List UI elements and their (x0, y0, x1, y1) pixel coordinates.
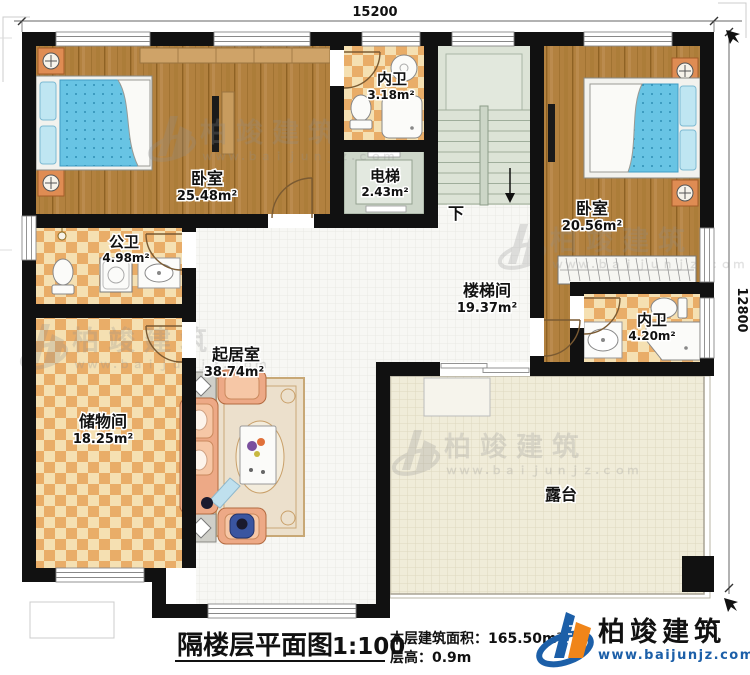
datum-bracket (30, 602, 114, 638)
bed (36, 76, 152, 170)
wall-ensuite-right-top (570, 282, 700, 294)
toilet (52, 259, 74, 294)
pillow (680, 86, 696, 126)
room-label-bedroom-right: 卧室 (576, 199, 608, 218)
door-gap (530, 318, 544, 356)
watermark-url: ｗｗｗ.ｂａｉｊｕｎｊｚ.ｃｏｍ (552, 258, 746, 272)
room-area-public-bath: 4.98m² (102, 251, 149, 265)
floor-plan-page: 柏竣建筑 ｗｗｗ.ｂａｉｊｕｎｊｚ.ｃｏｍ 柏竣建筑 ｗｗｗ.ｂａｉｊｕｎｊｚ.… (0, 0, 750, 675)
caption-area-line: 本层建筑面积：165.50m² (390, 630, 563, 647)
wall-left (22, 32, 36, 568)
nightstand (672, 180, 698, 206)
caption-height-line: 层高：0.9m (390, 649, 471, 666)
window (56, 568, 144, 582)
terrace-corner-post (682, 556, 714, 592)
flower (257, 438, 265, 446)
coffee-table (240, 426, 276, 484)
shower-drain (410, 126, 414, 130)
brand-logo: 柏竣建筑 www.baijunjz.com (535, 612, 750, 670)
tv (548, 104, 555, 162)
room-area-living: 38.74m² (204, 365, 264, 380)
watermark-name: 柏竣建筑 (200, 117, 344, 149)
room-area-storage: 18.25m² (73, 432, 133, 447)
window (452, 32, 514, 46)
watermark-url: ｗｗｗ.ｂａｉｊｕｎｊｚ.ｃｏｍ (202, 150, 396, 164)
bedroom-right-corridor-floor (544, 280, 570, 362)
door-gap (182, 232, 196, 268)
window (56, 32, 150, 46)
dimension-top-value: 15200 (352, 5, 397, 20)
pillow (40, 126, 56, 164)
door-gap (330, 50, 344, 86)
table-item (249, 468, 253, 472)
stair-rail (480, 106, 488, 205)
floor-plan-drawing: 柏竣建筑 ｗｗｗ.ｂａｉｊｕｎｊｚ.ｃｏｍ 柏竣建筑 ｗｗｗ.ｂａｉｊｕｎｊｚ.… (0, 0, 750, 675)
shower-drain (684, 346, 688, 350)
wall-public-bath-bottom (22, 304, 196, 318)
pillow (40, 82, 56, 120)
room-area-ensuite-top: 3.18m² (367, 88, 414, 102)
shower-tray (382, 96, 422, 138)
ceiling-lamp (58, 232, 66, 240)
dresser (140, 48, 330, 63)
wall-bath-elevator-divider (344, 140, 424, 152)
stairs-down-label: 下 (448, 204, 464, 223)
logo-name: 柏竣建筑 (598, 616, 726, 648)
room-label-stairwell: 楼梯间 (463, 281, 511, 300)
sliding-door (440, 362, 530, 376)
extension-lines (0, 38, 12, 250)
nightstand (38, 170, 64, 196)
room-area-elevator: 2.43m² (361, 185, 408, 199)
room-area-ensuite-right: 4.20m² (628, 329, 675, 343)
window (700, 228, 714, 282)
caption: 隔楼层平面图 1:100 本层建筑面积：165.50m² 层高：0.9m (175, 630, 563, 666)
dimension-right-value: 12800 (734, 287, 749, 332)
room-label-storage: 储物间 (78, 412, 127, 431)
staircase (438, 46, 530, 205)
bed (584, 78, 700, 178)
table-item (261, 470, 265, 474)
cursor-arrow-icon (726, 30, 740, 44)
room-label-ensuite-top: 内卫 (377, 70, 407, 88)
wall-terrace-left (376, 362, 390, 618)
caption-title: 隔楼层平面图 (177, 631, 333, 661)
window (214, 32, 310, 46)
window (22, 216, 36, 260)
room-label-ensuite-right: 内卫 (637, 311, 667, 329)
room-label-terrace: 露台 (545, 485, 577, 504)
flower (254, 451, 260, 457)
cursor-arrow-icon (724, 598, 738, 612)
wall-bath-right-bottom (540, 362, 714, 376)
room-label-living: 起居室 (211, 345, 260, 364)
flower (247, 441, 257, 451)
room-label-bedroom-left: 卧室 (191, 169, 223, 188)
room-label-elevator: 电梯 (370, 167, 400, 185)
window (208, 604, 356, 618)
room-area-bedroom-right: 20.56m² (562, 219, 622, 234)
nightstand (38, 48, 64, 74)
pillow (680, 130, 696, 170)
door-gap (268, 214, 314, 228)
terrace-step (424, 378, 490, 416)
wall-elevator-bottom (344, 214, 438, 228)
watermark-url: ｗｗｗ.ｂａｉｊｕｎｊｚ.ｃｏｍ (446, 464, 640, 478)
logo-url: www.baijunjz.com (598, 648, 750, 663)
room-area-stairwell: 19.37m² (457, 301, 517, 316)
room-area-bedroom-left: 25.48m² (177, 189, 237, 204)
door-gap (570, 296, 584, 328)
window (700, 298, 714, 358)
stair-landing (446, 54, 522, 110)
window (584, 32, 672, 46)
person-sitting (230, 514, 254, 538)
sink (584, 322, 622, 358)
watermark-name: 柏竣建筑 (444, 431, 588, 463)
wall-elevator-stairs (424, 32, 438, 228)
elevator-hall-door (366, 206, 406, 212)
window (362, 32, 420, 46)
room-label-public-bath: 公卫 (109, 233, 139, 251)
door-gap (182, 322, 196, 358)
